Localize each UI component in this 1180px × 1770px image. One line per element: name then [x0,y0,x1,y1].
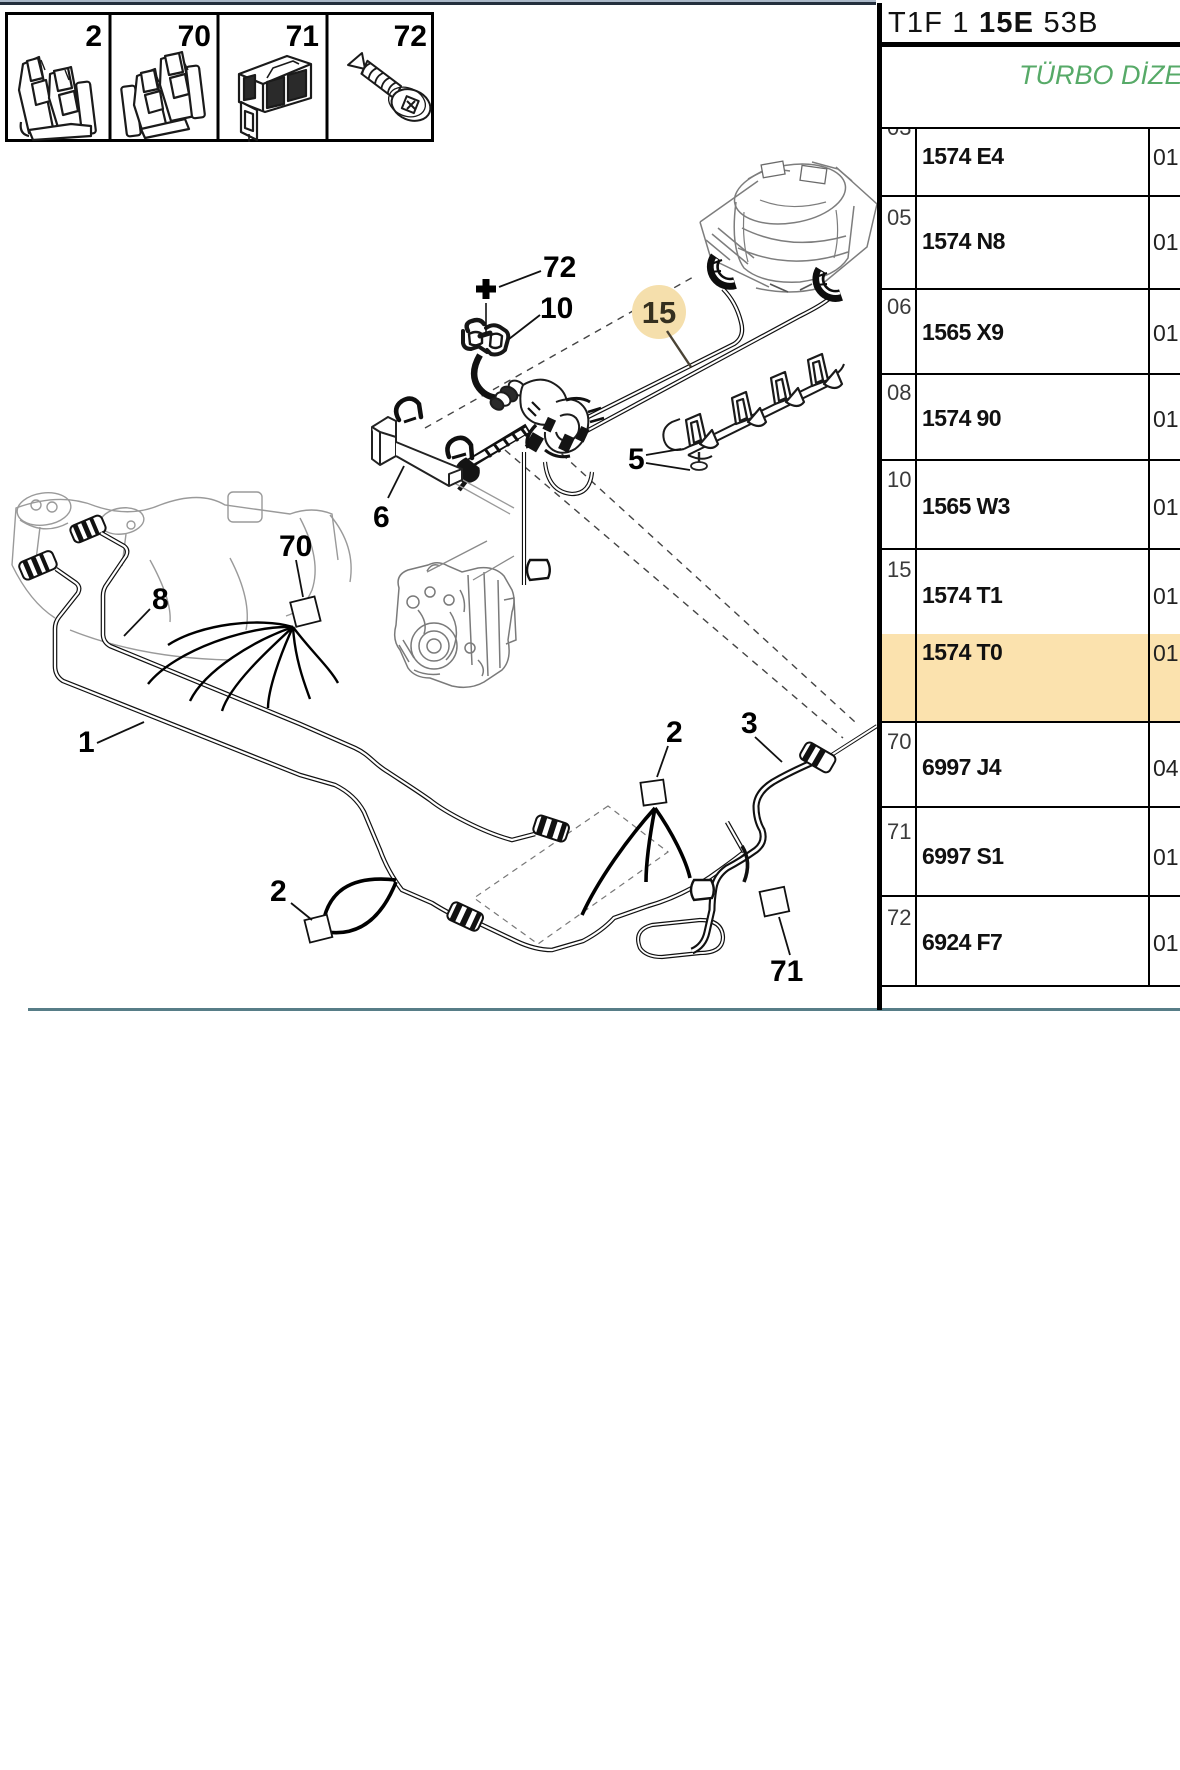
svg-text:5: 5 [628,443,645,476]
svg-text:71: 71 [770,955,803,988]
svg-text:6: 6 [373,501,390,534]
svg-text:1: 1 [78,726,95,759]
svg-text:2: 2 [666,716,683,749]
svg-text:10: 10 [540,292,573,325]
svg-text:8: 8 [152,583,169,616]
svg-text:2: 2 [270,875,287,908]
svg-text:3: 3 [741,707,758,740]
svg-text:15: 15 [642,295,676,330]
svg-text:70: 70 [279,530,312,563]
svg-text:72: 72 [543,251,576,284]
